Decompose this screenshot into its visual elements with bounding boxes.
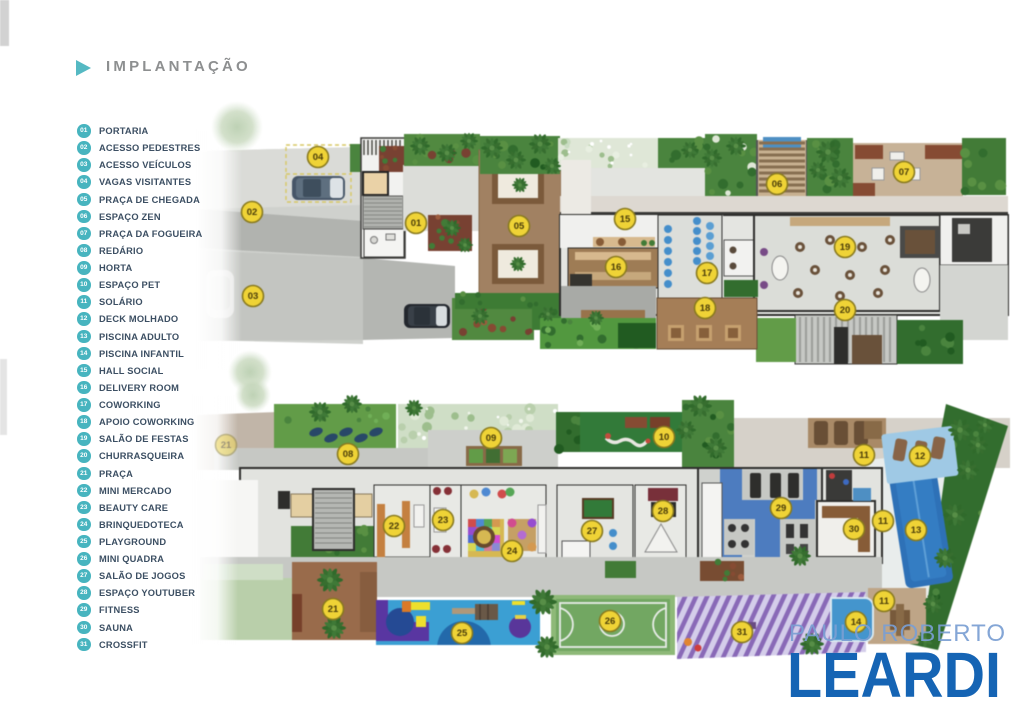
svg-text:11: 11 <box>879 596 890 607</box>
svg-text:08: 08 <box>343 449 354 460</box>
svg-text:28: 28 <box>658 506 669 517</box>
svg-text:15: 15 <box>620 214 631 225</box>
svg-text:02: 02 <box>247 207 258 218</box>
svg-text:07: 07 <box>899 167 910 178</box>
svg-text:LEARDI: LEARDI <box>787 640 1001 710</box>
svg-text:26: 26 <box>605 616 616 627</box>
svg-text:20: 20 <box>840 305 851 316</box>
svg-text:06: 06 <box>772 179 783 190</box>
svg-text:21: 21 <box>221 440 232 451</box>
svg-text:01: 01 <box>411 218 422 229</box>
svg-text:10: 10 <box>659 432 670 443</box>
svg-text:03: 03 <box>248 291 259 302</box>
svg-text:09: 09 <box>486 433 497 444</box>
svg-text:19: 19 <box>840 242 851 253</box>
svg-text:29: 29 <box>776 503 787 514</box>
svg-text:22: 22 <box>389 521 400 532</box>
svg-text:30: 30 <box>849 524 860 535</box>
svg-text:31: 31 <box>737 627 748 638</box>
svg-text:23: 23 <box>438 515 449 526</box>
svg-text:13: 13 <box>911 525 922 536</box>
svg-text:17: 17 <box>702 268 713 279</box>
svg-text:18: 18 <box>700 303 711 314</box>
svg-text:16: 16 <box>611 262 622 273</box>
svg-text:25: 25 <box>457 628 468 639</box>
svg-text:04: 04 <box>313 152 324 163</box>
svg-text:24: 24 <box>507 546 518 557</box>
svg-text:11: 11 <box>859 450 870 461</box>
svg-text:05: 05 <box>514 221 525 232</box>
svg-text:12: 12 <box>915 451 926 462</box>
svg-text:21: 21 <box>328 604 339 615</box>
svg-text:27: 27 <box>587 526 598 537</box>
svg-text:11: 11 <box>878 516 889 527</box>
